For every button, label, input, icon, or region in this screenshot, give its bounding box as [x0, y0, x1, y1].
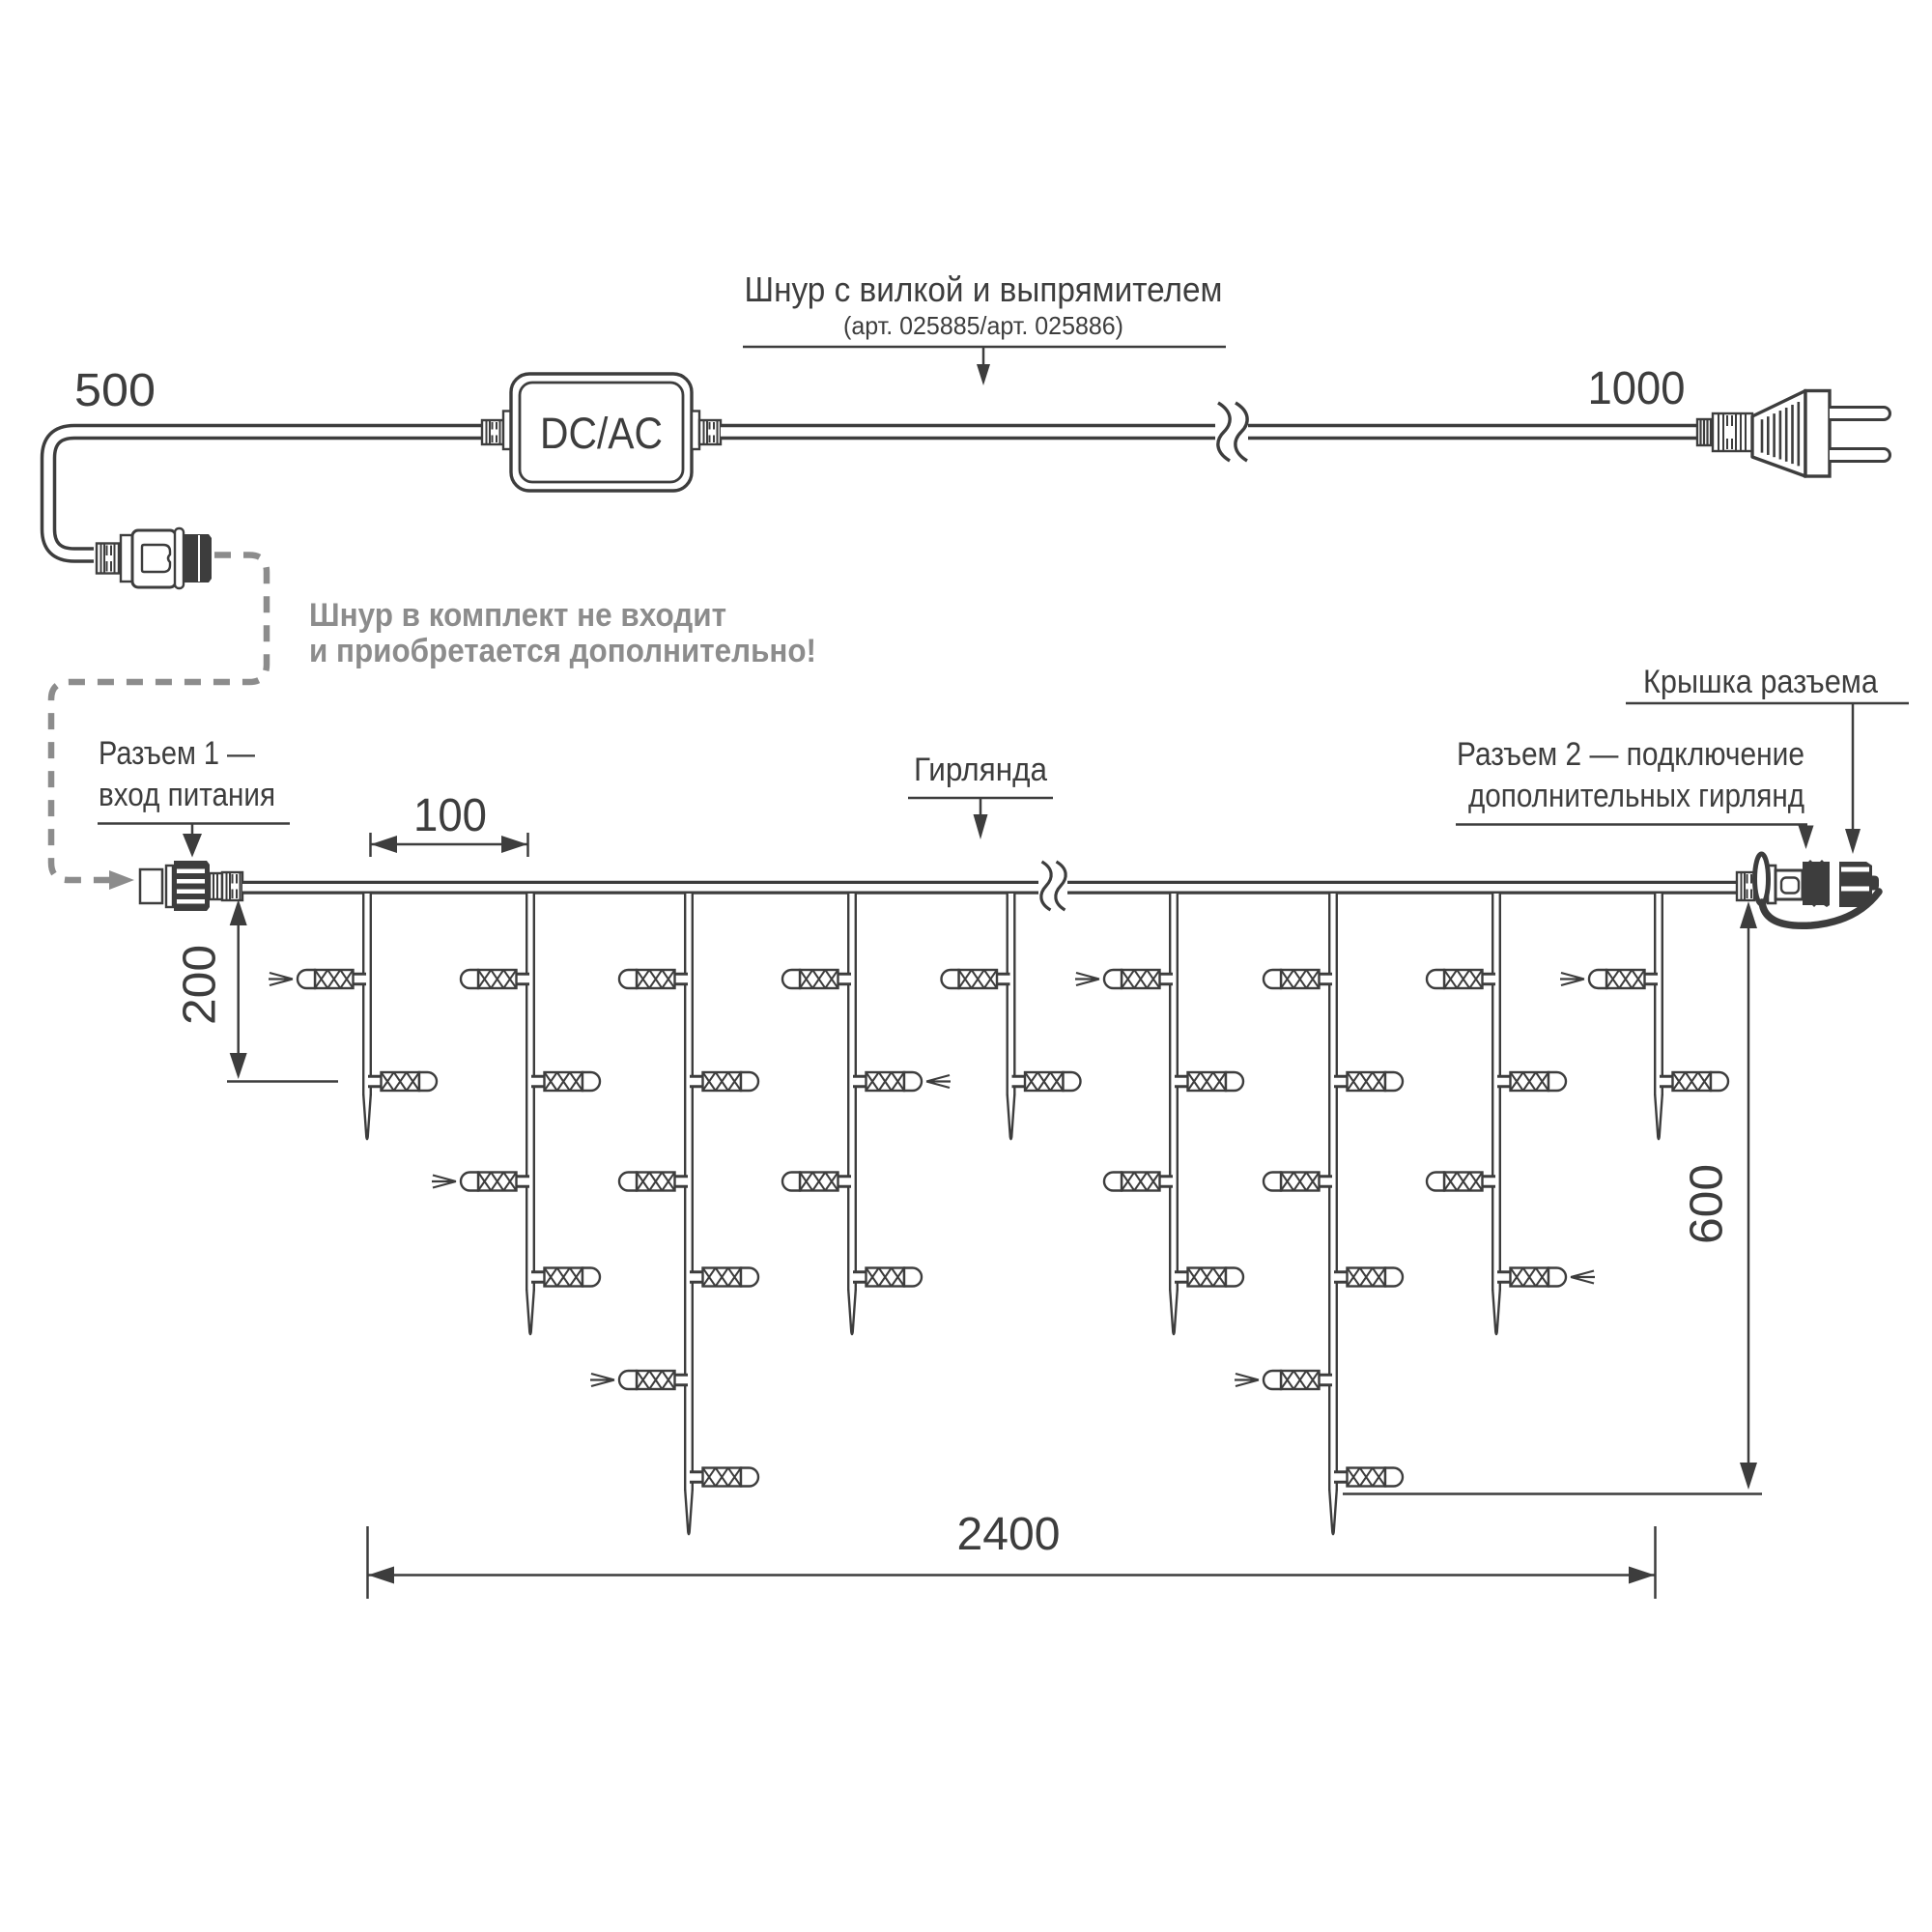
- svg-text:2400: 2400: [957, 1509, 1061, 1560]
- svg-text:дополнительных гирлянд: дополнительных гирлянд: [1468, 778, 1804, 814]
- svg-text:вход питания: вход питания: [99, 777, 275, 813]
- svg-text:(арт. 025885/арт. 025886): (арт. 025885/арт. 025886): [843, 311, 1123, 340]
- svg-text:200: 200: [175, 945, 226, 1025]
- svg-text:1000: 1000: [1588, 363, 1686, 414]
- svg-text:Крышка разъема: Крышка разъема: [1643, 664, 1878, 700]
- svg-text:500: 500: [74, 365, 156, 416]
- svg-text:DC/AC: DC/AC: [540, 409, 663, 458]
- svg-text:Гирлянда: Гирлянда: [914, 752, 1047, 788]
- svg-text:Шнур с вилкой и выпрямителем: Шнур с вилкой и выпрямителем: [745, 270, 1223, 309]
- svg-text:и приобретается дополнительно!: и приобретается дополнительно!: [309, 633, 816, 669]
- svg-text:Разъем 1 —: Разъем 1 —: [99, 735, 255, 772]
- svg-text:Шнур в комплект не входит: Шнур в комплект не входит: [309, 597, 726, 634]
- svg-text:600: 600: [1682, 1164, 1733, 1244]
- svg-text:100: 100: [413, 790, 487, 841]
- svg-text:Разъем 2 — подключение: Разъем 2 — подключение: [1457, 736, 1804, 773]
